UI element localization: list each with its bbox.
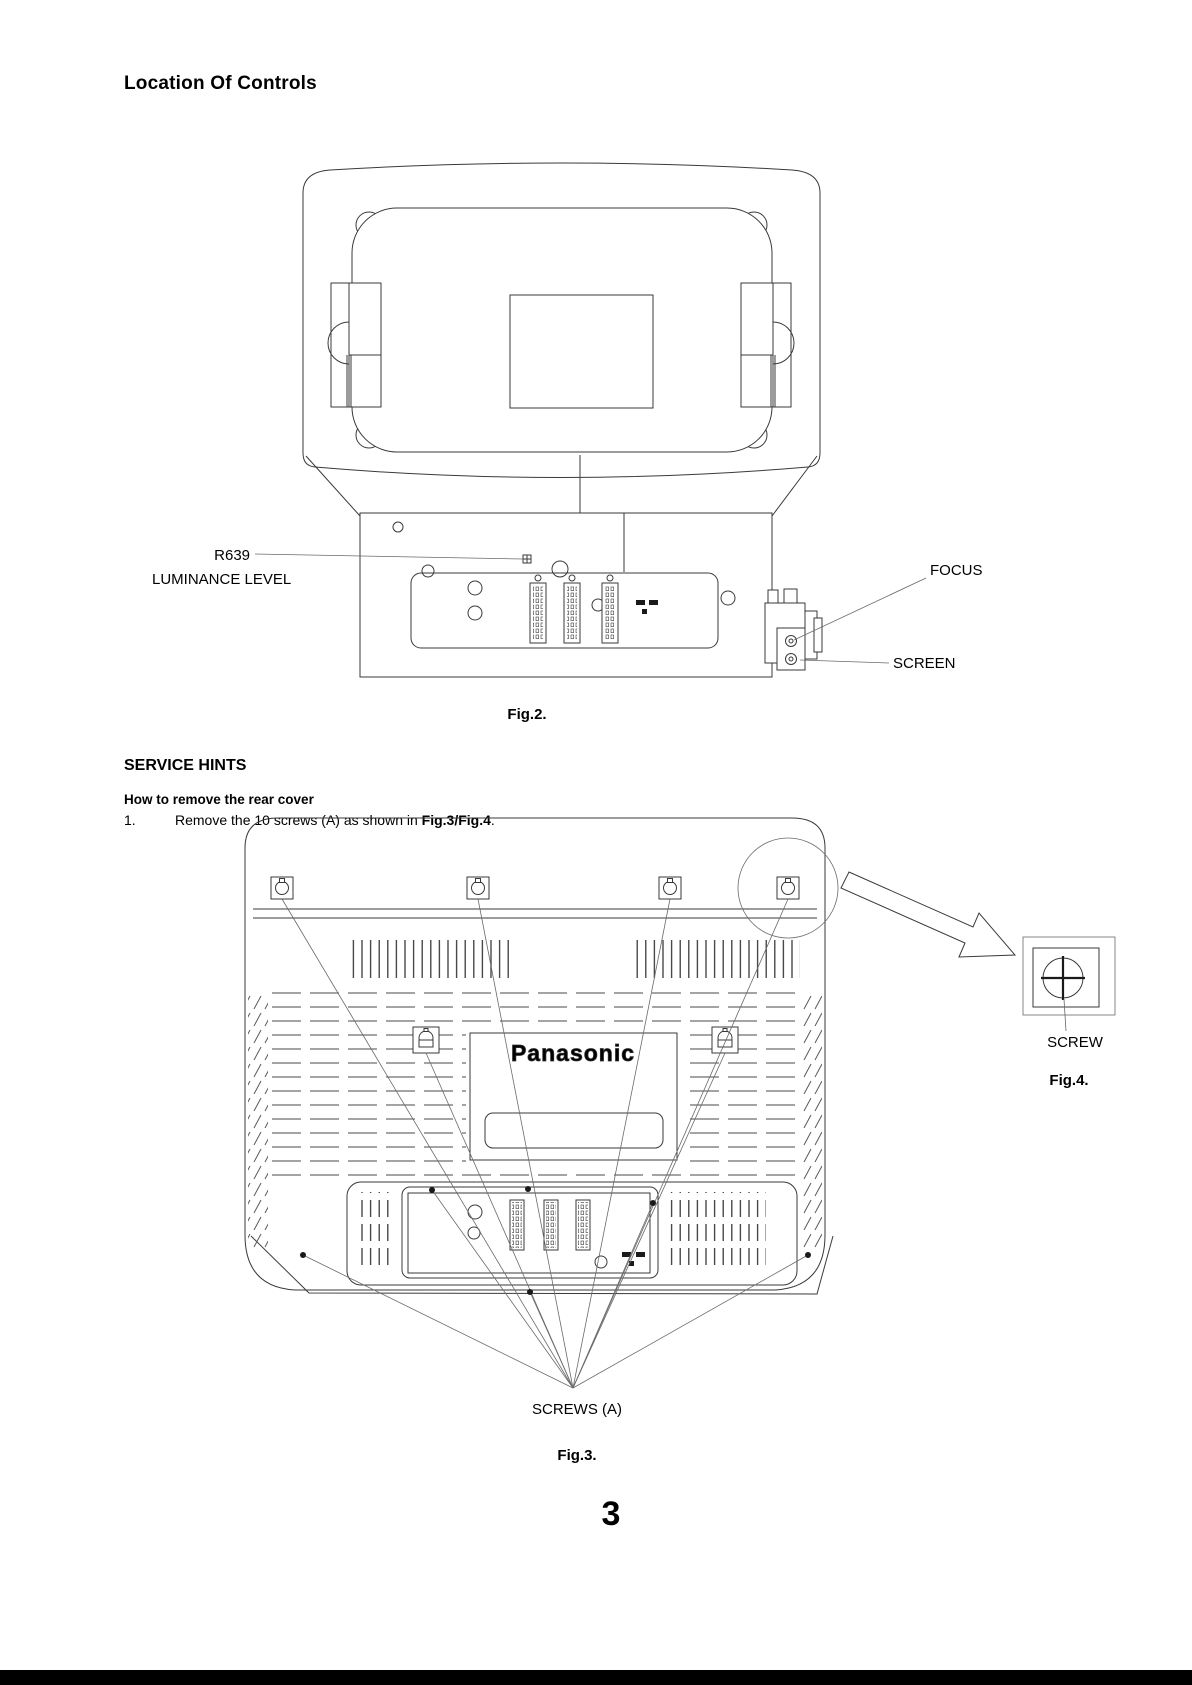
scart-connector-3: [602, 575, 618, 643]
page-title: Location Of Controls: [124, 73, 317, 95]
scart-connector-1: [530, 575, 546, 643]
vent-slats-top: [350, 940, 800, 978]
label-focus: FOCUS: [930, 562, 983, 579]
fig2-caption: Fig.2.: [462, 706, 592, 723]
top-screw-row: [253, 877, 817, 918]
focus-leader-line: [794, 578, 926, 640]
right-bracket: [741, 283, 794, 407]
label-screws-a: SCREWS (A): [532, 1401, 622, 1418]
inner-frame: [352, 208, 772, 452]
screw-box-icon-2: [467, 877, 489, 899]
left-bracket: [328, 283, 381, 407]
fig4-caption: Fig.4.: [1049, 1072, 1088, 1089]
screw-detail-icon: [1023, 937, 1115, 1031]
left-side-shading: [248, 995, 268, 1250]
rear-scart-connector-1: [510, 1200, 524, 1250]
scart-connector-2: [564, 575, 580, 643]
right-side-shading: [802, 995, 822, 1250]
label-screw: SCREW: [1047, 1034, 1104, 1051]
fig2-diagram: R639 LUMINANCE LEVEL FOCUS SCREEN: [120, 148, 1000, 688]
service-hints-heading: SERVICE HINTS: [124, 757, 246, 775]
screw-box-icon-4: [777, 877, 799, 899]
brand-panel: Panasonic: [470, 1033, 677, 1160]
zoom-arrow-icon: [841, 872, 1015, 957]
fig3-caption: Fig.3.: [557, 1447, 596, 1464]
panasonic-logo: Panasonic: [511, 1040, 635, 1066]
label-r639: R639: [214, 547, 250, 564]
keyhole-screw-icon-right: [712, 1027, 738, 1053]
label-luminance-level: LUMINANCE LEVEL: [152, 571, 291, 588]
keyhole-screw-icon-left: [413, 1027, 439, 1053]
connector-panel: [360, 513, 772, 677]
label-screen: SCREEN: [893, 655, 956, 672]
rear-scart-connector-3: [576, 1200, 590, 1250]
page-number: 3: [576, 1495, 646, 1534]
manual-page: Location Of Controls: [0, 0, 1192, 1685]
fig3-fig4-diagram: Panasonic: [120, 790, 1120, 1490]
bottom-connector-panel: [347, 1182, 797, 1285]
screw-box-icon-1: [271, 877, 293, 899]
focus-screen-assembly: [765, 589, 822, 670]
screw-box-icon-3: [659, 877, 681, 899]
screen-leader-line: [800, 660, 889, 663]
vent-slats-bottom-right: [670, 1192, 766, 1272]
footer-bar: [0, 1670, 1192, 1685]
rear-scart-connector-2: [544, 1200, 558, 1250]
vent-slats-bottom-left: [356, 1192, 392, 1272]
